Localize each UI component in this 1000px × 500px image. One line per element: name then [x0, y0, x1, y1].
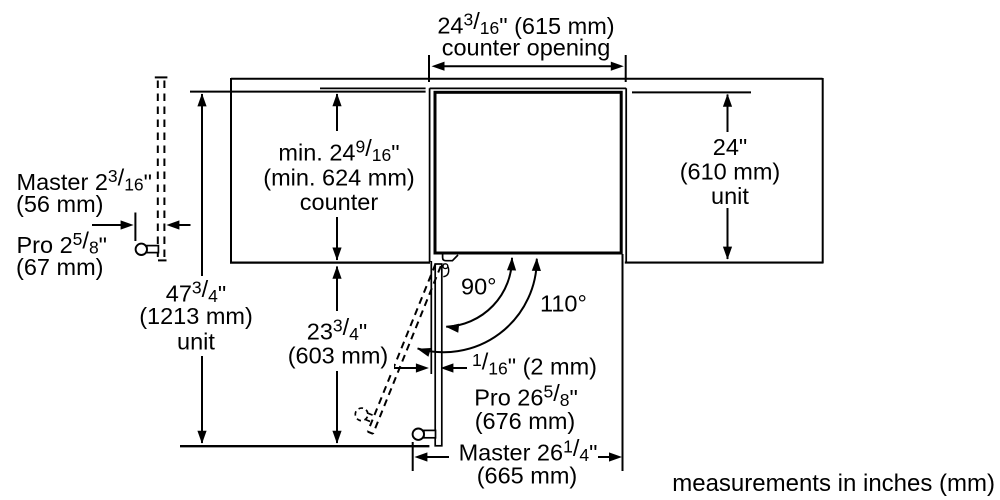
svg-text:24": 24"	[713, 134, 747, 160]
svg-text:(665 mm): (665 mm)	[477, 463, 578, 489]
svg-text:110°: 110°	[540, 291, 587, 317]
svg-text:(610 mm): (610 mm)	[680, 159, 781, 185]
svg-text:90°: 90°	[461, 274, 497, 300]
svg-text:(1213 mm): (1213 mm)	[139, 303, 253, 329]
svg-text:(676 mm): (676 mm)	[475, 408, 576, 434]
svg-text:(56 mm): (56 mm)	[16, 191, 103, 217]
svg-text:(min. 624 mm): (min. 624 mm)	[263, 165, 414, 191]
svg-text:(603 mm): (603 mm)	[288, 343, 389, 369]
svg-text:measurements in inches (mm): measurements in inches (mm)	[672, 470, 995, 497]
svg-text:counter opening: counter opening	[442, 35, 611, 61]
svg-text:counter: counter	[300, 189, 379, 215]
svg-text:unit: unit	[711, 183, 749, 209]
svg-text:unit: unit	[177, 329, 215, 355]
svg-text:(67 mm): (67 mm)	[16, 254, 103, 280]
